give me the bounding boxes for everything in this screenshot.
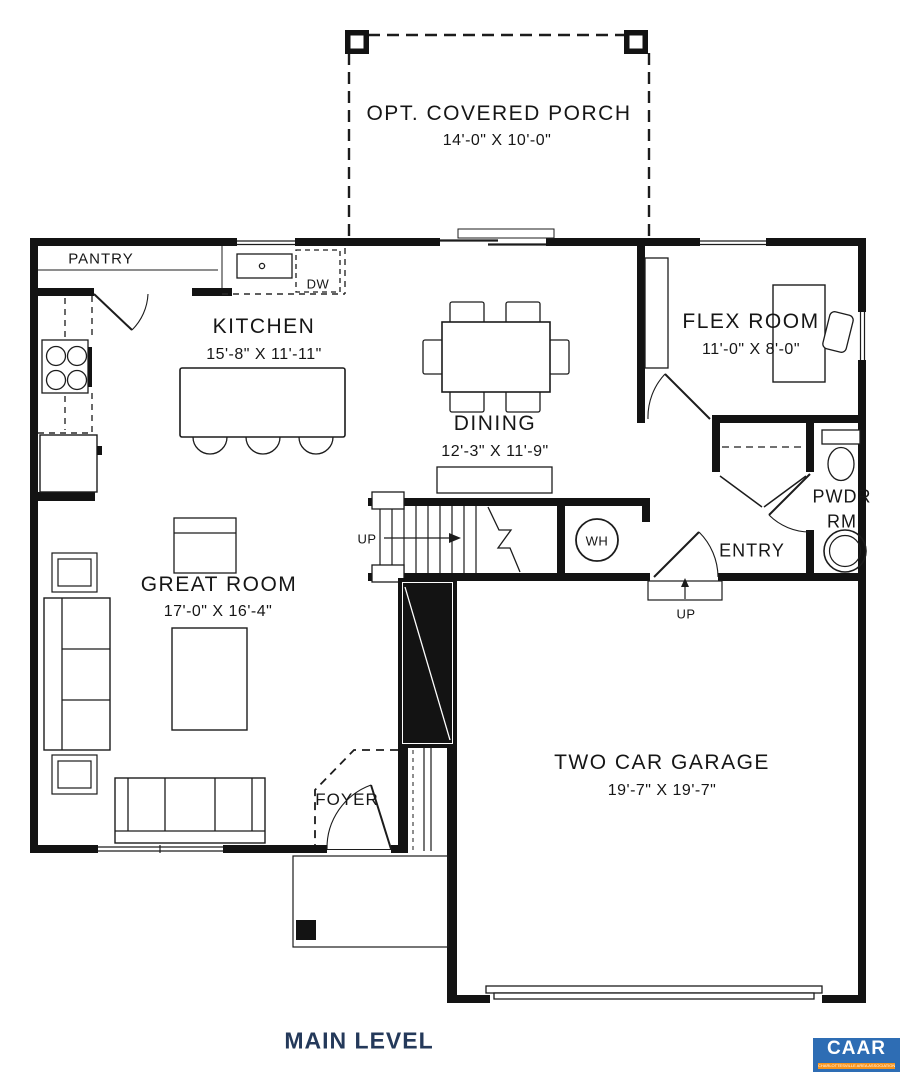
caar-logo: CAAR CHARLOTTESVILLE AREA ASSOCIATION OF… xyxy=(813,1038,900,1072)
great-room-label: GREAT ROOM xyxy=(141,573,298,597)
stairs-up-label: UP xyxy=(357,532,376,547)
dining-chair xyxy=(450,302,484,324)
stoop-post xyxy=(296,920,316,940)
kitchen-island xyxy=(180,368,345,437)
porch-dims: 14'-0" X 10'-0" xyxy=(443,132,552,150)
water-heater-label: WH xyxy=(586,534,609,549)
toilet-tank xyxy=(822,430,860,444)
garage-door xyxy=(494,993,814,999)
caar-logo-tagline: CHARLOTTESVILLE AREA ASSOCIATION OF REAL… xyxy=(818,1063,895,1069)
great-room-furniture xyxy=(44,518,265,843)
island-stool xyxy=(299,437,333,454)
entry-label: ENTRY xyxy=(719,541,785,562)
kitchen-fixtures xyxy=(38,246,345,492)
dining-chair xyxy=(549,340,569,374)
sofa-bottom xyxy=(115,778,265,843)
armchair xyxy=(174,518,236,573)
pantry-door xyxy=(94,294,148,330)
dining-label: DINING xyxy=(454,412,537,436)
refrigerator xyxy=(40,435,97,492)
kitchen-label: KITCHEN xyxy=(213,315,316,339)
floor-plan-page: OPT. COVERED PORCH 14'-0" X 10'-0" PANTR… xyxy=(0,0,902,1080)
garage-dims: 19'-7" X 19'-7" xyxy=(608,782,717,800)
powder-room-label: RM xyxy=(827,512,857,533)
powder-room-label: PWDR xyxy=(813,487,872,508)
great-room-dims: 17'-0" X 16'-4" xyxy=(164,603,273,621)
sofa-left xyxy=(44,598,110,750)
bookcase xyxy=(645,258,668,368)
dining-chair xyxy=(423,340,443,374)
flex-room-dims: 11'-0" X 8'-0" xyxy=(702,341,800,359)
foyer-label: FOYER xyxy=(315,790,379,810)
pantry-label: PANTRY xyxy=(68,251,133,268)
garage-entry-door xyxy=(654,532,718,577)
dining-furniture xyxy=(423,302,569,493)
kitchen-dims: 15'-8" X 11'-11" xyxy=(206,346,322,364)
dishwasher-label: DW xyxy=(307,277,330,292)
dining-dims: 12'-3" X 11'-9" xyxy=(441,443,548,461)
dining-chair xyxy=(450,390,484,412)
dining-chair xyxy=(506,390,540,412)
sideboard xyxy=(437,467,552,493)
porch-step xyxy=(458,229,554,238)
desk-chair xyxy=(822,311,854,354)
dining-chair xyxy=(506,302,540,324)
entry-up-label: UP xyxy=(676,607,695,622)
toilet-bowl xyxy=(828,448,854,481)
caar-logo-text: CAAR xyxy=(827,1038,886,1060)
powder-room-door xyxy=(769,474,810,532)
island-stool xyxy=(193,437,227,454)
porch-label: OPT. COVERED PORCH xyxy=(366,102,631,126)
flex-room-label: FLEX ROOM xyxy=(682,310,819,334)
page-title: MAIN LEVEL xyxy=(284,1028,433,1055)
front-stoop xyxy=(293,856,448,947)
garage-label: TWO CAR GARAGE xyxy=(554,751,770,775)
coffee-table xyxy=(172,628,247,730)
dining-table xyxy=(442,322,550,392)
island-stool xyxy=(246,437,280,454)
garage-door xyxy=(486,986,822,993)
flex-room-door xyxy=(648,374,710,419)
stair-break-line xyxy=(488,507,520,572)
